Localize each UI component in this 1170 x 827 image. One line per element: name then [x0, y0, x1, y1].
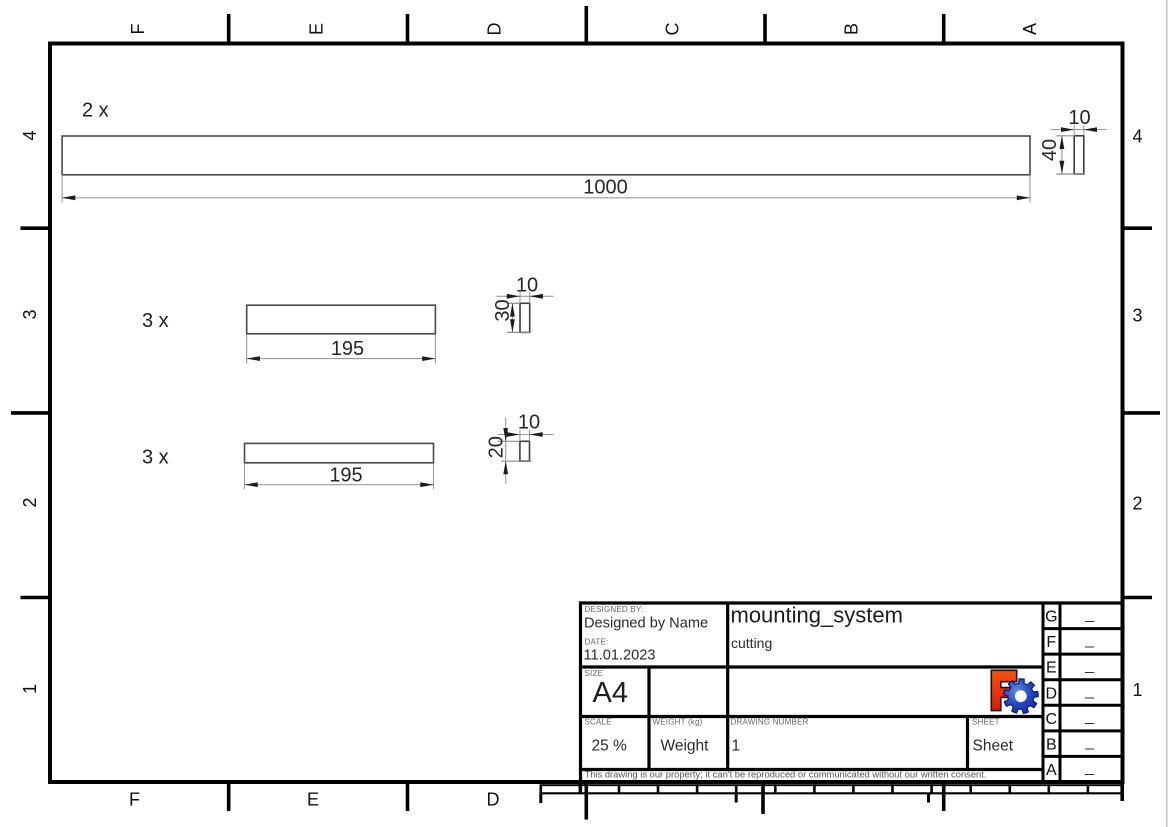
- svg-text:C: C: [663, 23, 683, 36]
- svg-text:E: E: [307, 23, 327, 35]
- svg-text:10: 10: [518, 412, 540, 434]
- svg-text:_: _: [1084, 683, 1095, 700]
- svg-text:1: 1: [732, 738, 741, 755]
- svg-text:Weight: Weight: [661, 738, 710, 755]
- svg-text:3: 3: [20, 309, 40, 319]
- svg-text:cutting: cutting: [731, 635, 772, 651]
- svg-text:20: 20: [485, 436, 507, 458]
- svg-text:DATE:: DATE:: [585, 638, 609, 647]
- svg-text:F: F: [129, 790, 140, 810]
- svg-text:11.01.2023: 11.01.2023: [584, 648, 656, 664]
- svg-text:3 x: 3 x: [142, 447, 169, 469]
- svg-text:A: A: [1020, 23, 1040, 35]
- svg-text:Sheet: Sheet: [973, 738, 1014, 755]
- svg-text:SCALE: SCALE: [585, 717, 612, 726]
- svg-text:E: E: [1046, 660, 1057, 677]
- svg-text:_: _: [1084, 631, 1095, 648]
- svg-text:1: 1: [1132, 680, 1142, 700]
- svg-text:_: _: [1084, 708, 1095, 725]
- svg-text:10: 10: [1068, 107, 1090, 129]
- svg-text:2: 2: [1132, 494, 1142, 514]
- svg-text:195: 195: [331, 338, 364, 360]
- svg-text:B: B: [1046, 736, 1057, 753]
- svg-text:B: B: [842, 23, 862, 35]
- svg-text:F: F: [128, 24, 148, 35]
- svg-text:This drawing is our property;: This drawing is our property; it can't b…: [585, 769, 987, 780]
- svg-text:4: 4: [20, 130, 40, 140]
- svg-text:1000: 1000: [583, 177, 628, 199]
- svg-text:1: 1: [20, 684, 40, 694]
- svg-text:A: A: [1046, 762, 1057, 779]
- svg-text:DESIGNED BY:: DESIGNED BY:: [585, 605, 644, 614]
- svg-text:3 x: 3 x: [142, 310, 169, 332]
- svg-text:_: _: [1084, 759, 1095, 776]
- svg-text:WEIGHT (kg): WEIGHT (kg): [653, 717, 703, 726]
- svg-text:2: 2: [20, 497, 40, 507]
- svg-text:C: C: [1046, 711, 1058, 728]
- svg-text:_: _: [1084, 606, 1095, 623]
- svg-text:2 x: 2 x: [82, 100, 109, 122]
- svg-text:F: F: [1046, 634, 1056, 651]
- svg-text:10: 10: [516, 275, 538, 297]
- svg-text:40: 40: [1039, 139, 1061, 161]
- svg-text:Designed by Name: Designed by Name: [584, 615, 708, 631]
- svg-text:4: 4: [1132, 126, 1142, 146]
- svg-text:195: 195: [329, 464, 362, 486]
- svg-text:A4: A4: [593, 677, 628, 709]
- svg-text:D: D: [485, 23, 505, 36]
- svg-text:D: D: [1046, 685, 1058, 702]
- svg-text:D: D: [487, 790, 500, 810]
- svg-text:G: G: [1045, 609, 1057, 626]
- svg-text:SHEET: SHEET: [972, 717, 1000, 726]
- svg-text:_: _: [1084, 657, 1095, 674]
- svg-text:mounting_system: mounting_system: [731, 603, 903, 628]
- svg-text:30: 30: [492, 299, 514, 321]
- svg-text:DRAWING NUMBER: DRAWING NUMBER: [731, 717, 809, 726]
- svg-text:3: 3: [1132, 306, 1142, 326]
- svg-text:E: E: [307, 790, 319, 810]
- svg-text:25 %: 25 %: [592, 738, 628, 755]
- svg-text:_: _: [1084, 734, 1095, 751]
